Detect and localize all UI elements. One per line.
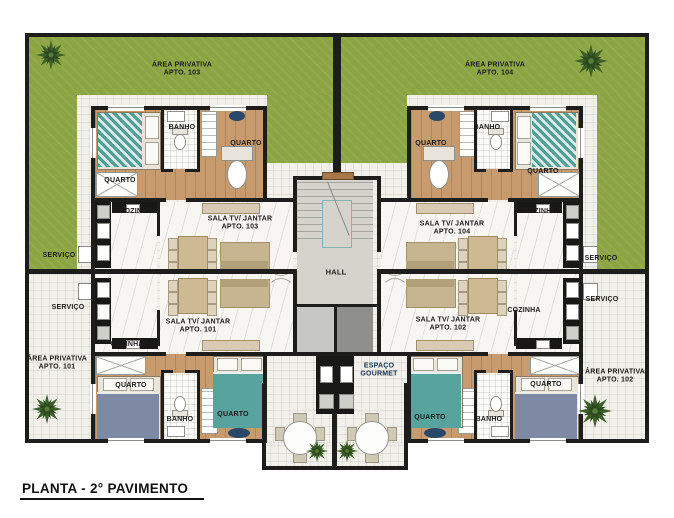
- sala-line1: SALA TV/ JANTAR: [420, 221, 484, 229]
- label-hall: HALL: [326, 268, 347, 277]
- label-quarto: QUARTO: [230, 140, 261, 148]
- sala-line1: SALA TV/ JANTAR: [416, 317, 480, 325]
- wall-segment: [293, 176, 297, 252]
- bed-pillow: [145, 142, 159, 165]
- chair: [497, 280, 507, 292]
- chair: [497, 304, 507, 316]
- bed-pillow: [517, 142, 531, 165]
- wall-segment: [161, 370, 173, 373]
- label-quarto: QUARTO: [527, 168, 558, 176]
- ottoman: [228, 428, 250, 438]
- kitchen-sink-icon: [536, 340, 550, 349]
- area-line2: APTO. 104: [465, 70, 525, 78]
- wall-segment: [161, 370, 164, 443]
- bed-blanket: [515, 392, 577, 440]
- wall-segment: [474, 169, 486, 172]
- label-quarto: QUARTO: [414, 414, 445, 422]
- lawn-apto104-notch: [341, 95, 407, 163]
- window: [210, 105, 246, 111]
- wall-segment: [25, 33, 29, 443]
- tv-cabinet: [416, 203, 474, 214]
- grill-box: [339, 394, 354, 409]
- window: [530, 105, 566, 111]
- chair: [207, 280, 217, 292]
- label-cozinha: COZINHA: [507, 307, 540, 315]
- chair: [497, 238, 507, 250]
- wall-segment: [185, 370, 200, 373]
- stove-icon: [566, 245, 579, 261]
- sala-line2: APTO. 101: [166, 327, 230, 335]
- label-area-privativa-104: ÁREA PRIVATIVA APTO. 104: [465, 62, 525, 79]
- wall-segment: [377, 270, 381, 356]
- wall-segment: [377, 198, 411, 202]
- bed-pillow: [241, 358, 262, 371]
- sala-line2: APTO. 102: [416, 325, 480, 333]
- label-banho: BANHO: [167, 416, 194, 424]
- bed-pillow: [517, 116, 531, 139]
- wall-segment: [510, 370, 513, 443]
- banho-toilet-bowl: [490, 134, 502, 150]
- chair: [458, 292, 468, 304]
- label-espaco-gourmet: ESPAÇO GOURMET: [360, 363, 397, 380]
- label-sala-103: SALA TV/ JANTAR APTO. 103: [208, 216, 272, 233]
- plan-element: [32, 394, 62, 424]
- label-area-privativa-101: ÁREA PRIVATIVA APTO. 101: [27, 356, 87, 373]
- chair: [168, 280, 178, 292]
- chair: [497, 292, 507, 304]
- grill-sink-icon: [340, 366, 353, 383]
- banho-toilet-bowl: [174, 134, 186, 150]
- label-cozinha: COZINHA: [119, 208, 152, 216]
- plant-icon: [336, 440, 358, 462]
- chair: [207, 238, 217, 250]
- fridge-icon: [97, 326, 110, 340]
- gourmet-line2: GOURMET: [360, 371, 397, 379]
- floor-plan-page: ÁREA PRIVATIVA APTO. 103 ÁREA PRIVATIVA …: [0, 0, 674, 518]
- kitchen-sink-icon: [566, 223, 579, 239]
- tv-cabinet: [202, 340, 260, 351]
- plan-element: [574, 44, 608, 78]
- tv-cabinet: [416, 340, 474, 351]
- gourmet-line1: ESPAÇO: [360, 363, 397, 371]
- tree-icon: [578, 394, 612, 428]
- wall-segment: [262, 466, 408, 470]
- dining-table: [178, 278, 208, 314]
- kitchen-sink-icon: [97, 223, 110, 239]
- bed-pillow: [145, 116, 159, 139]
- window: [210, 438, 246, 444]
- plan-element: [306, 440, 328, 462]
- tv-cabinet: [202, 203, 260, 214]
- label-quarto: QUARTO: [115, 382, 146, 390]
- wall-segment: [186, 352, 267, 356]
- label-banho: BANHO: [474, 124, 501, 132]
- wall-segment: [474, 370, 477, 443]
- chair: [207, 304, 217, 316]
- shaft-room-light: [297, 307, 334, 352]
- closet: [459, 111, 475, 157]
- wall-segment: [377, 352, 411, 356]
- sofa-back: [406, 279, 454, 287]
- label-sala-102: SALA TV/ JANTAR APTO. 102: [416, 317, 480, 334]
- gourmet-table: [355, 421, 389, 455]
- area-line1: ÁREA PRIVATIVA: [152, 62, 212, 70]
- sofa-back: [220, 279, 268, 287]
- banho-sink: [167, 426, 185, 437]
- bed-blanket: [98, 113, 142, 167]
- fridge-icon: [97, 205, 110, 219]
- wall-segment: [293, 270, 297, 356]
- banho-sink: [491, 426, 509, 437]
- dining-table: [178, 236, 208, 272]
- wall-segment: [197, 106, 200, 172]
- wall-segment: [334, 304, 337, 352]
- kitchen-sink-icon: [566, 282, 579, 298]
- wall-segment: [157, 310, 160, 346]
- banho-sink: [167, 111, 185, 122]
- label-sala-104: SALA TV/ JANTAR APTO. 104: [420, 221, 484, 238]
- label-banho: BANHO: [476, 416, 503, 424]
- area-line2: APTO. 103: [152, 70, 212, 78]
- plan-element: [36, 40, 66, 70]
- sala-line2: APTO. 103: [208, 224, 272, 232]
- wall-segment: [407, 352, 411, 443]
- wall-segment: [407, 106, 411, 202]
- bed-pillow: [217, 358, 238, 371]
- label-servico: SERVIÇO: [52, 304, 85, 312]
- window: [428, 438, 464, 444]
- label-servico: SERVIÇO: [585, 255, 618, 263]
- toilet-tank: [423, 146, 455, 161]
- stove-icon: [97, 304, 110, 320]
- label-servico: SERVIÇO: [586, 296, 619, 304]
- chair: [207, 292, 217, 304]
- dining-table: [468, 236, 498, 272]
- wall-segment: [157, 202, 160, 236]
- wall-segment: [293, 352, 377, 356]
- wall-segment: [186, 198, 267, 202]
- wall-segment: [91, 198, 166, 202]
- sala-line1: SALA TV/ JANTAR: [208, 216, 272, 224]
- wall-segment: [161, 106, 164, 172]
- stove-icon: [566, 304, 579, 320]
- tree-icon: [36, 40, 66, 70]
- grill-sink-icon: [320, 366, 333, 383]
- sala-line1: SALA TV/ JANTAR: [166, 319, 230, 327]
- area-line2: APTO. 102: [585, 377, 645, 385]
- plan-title: PLANTA - 2° PAVIMENTO: [20, 481, 204, 500]
- window: [578, 128, 584, 158]
- ottoman: [424, 428, 446, 438]
- bed-blanket: [532, 113, 576, 167]
- toilet-bowl: [429, 160, 449, 189]
- chair: [458, 304, 468, 316]
- wall-segment: [333, 33, 341, 176]
- sala-line2: APTO. 104: [420, 229, 484, 237]
- wall-segment: [474, 106, 477, 172]
- label-cozinha: COZINHA: [523, 208, 556, 216]
- label-area-privativa-103: ÁREA PRIVATIVA APTO. 103: [152, 62, 212, 79]
- label-quarto: QUARTO: [415, 140, 446, 148]
- wall-segment: [185, 169, 200, 172]
- wall-segment: [510, 106, 513, 172]
- window: [530, 438, 566, 444]
- area-line1: ÁREA PRIVATIVA: [465, 62, 525, 70]
- area-line1: ÁREA PRIVATIVA: [27, 356, 87, 364]
- kitchen-sink-icon: [97, 282, 110, 298]
- wall-segment: [25, 269, 297, 274]
- chair: [168, 250, 178, 262]
- wall-segment: [263, 352, 267, 443]
- plant-icon: [306, 440, 328, 462]
- door-swing-arc: [381, 278, 409, 306]
- sofa-back: [220, 261, 268, 269]
- banho-sink: [491, 111, 509, 122]
- area-line2: APTO. 101: [27, 364, 87, 372]
- toilet-bowl: [227, 160, 247, 189]
- wall-segment: [407, 352, 488, 356]
- chair: [458, 238, 468, 250]
- window: [90, 128, 96, 158]
- window: [108, 438, 144, 444]
- fridge-icon: [566, 205, 579, 219]
- window: [90, 384, 96, 414]
- wall-segment: [498, 370, 513, 373]
- banho-toilet-bowl: [490, 396, 502, 412]
- wall-segment: [514, 310, 517, 346]
- wall-segment: [645, 33, 649, 443]
- shaft-room-dark: [337, 307, 373, 352]
- wardrobe: [530, 356, 580, 375]
- stove-icon: [97, 245, 110, 261]
- chair: [168, 238, 178, 250]
- lawn-apto104-right: [597, 95, 645, 273]
- fridge-icon: [566, 326, 579, 340]
- grill-box: [319, 394, 334, 409]
- chair: [458, 280, 468, 292]
- stair-entry-door: [322, 172, 354, 180]
- tree-icon: [32, 394, 62, 424]
- chair: [168, 292, 178, 304]
- wall-segment: [407, 198, 488, 202]
- label-servico: SERVIÇO: [43, 252, 76, 260]
- label-quarto: QUARTO: [530, 381, 561, 389]
- door-swing-arc: [267, 278, 295, 306]
- bed-blanket: [97, 392, 159, 440]
- dining-table: [468, 278, 498, 314]
- wall-segment: [91, 352, 166, 356]
- sink-navy: [429, 111, 445, 121]
- plan-element: [578, 394, 612, 428]
- wall-segment: [263, 198, 297, 202]
- sofa-back: [406, 261, 454, 269]
- wall-segment: [508, 198, 583, 202]
- label-area-privativa-102: ÁREA PRIVATIVA APTO. 102: [585, 369, 645, 386]
- plan-element: [336, 440, 358, 462]
- wall-segment: [474, 370, 486, 373]
- wall-segment: [514, 202, 517, 236]
- chair: [458, 250, 468, 262]
- label-sala-101: SALA TV/ JANTAR APTO. 101: [166, 319, 230, 336]
- bed-pillow: [437, 358, 458, 371]
- toilet-tank: [221, 146, 253, 161]
- wall-segment: [161, 169, 173, 172]
- tree-icon: [574, 44, 608, 78]
- wardrobe: [96, 356, 146, 375]
- window: [108, 105, 144, 111]
- sink-navy: [229, 111, 245, 121]
- chair: [168, 304, 178, 316]
- wall-segment: [197, 370, 200, 443]
- wall-segment: [377, 176, 381, 252]
- banho-toilet-bowl: [174, 396, 186, 412]
- wall-segment: [263, 106, 267, 202]
- bed-pillow: [413, 358, 434, 371]
- wall-segment: [91, 273, 95, 443]
- wall-segment: [263, 352, 297, 356]
- label-cozinha: COZINHA: [110, 341, 143, 349]
- wall-segment: [377, 269, 649, 274]
- chair: [207, 250, 217, 262]
- label-banho: BANHO: [169, 124, 196, 132]
- closet: [201, 111, 217, 157]
- wall-segment: [508, 352, 583, 356]
- wall-segment: [498, 169, 513, 172]
- window: [428, 105, 464, 111]
- chair: [497, 250, 507, 262]
- bed-blanket: [213, 372, 265, 428]
- lawn-apto103-left: [29, 95, 77, 273]
- label-quarto: QUARTO: [217, 411, 248, 419]
- lawn-apto103-notch: [267, 95, 333, 163]
- area-line1: ÁREA PRIVATIVA: [585, 369, 645, 377]
- label-quarto: QUARTO: [104, 177, 135, 185]
